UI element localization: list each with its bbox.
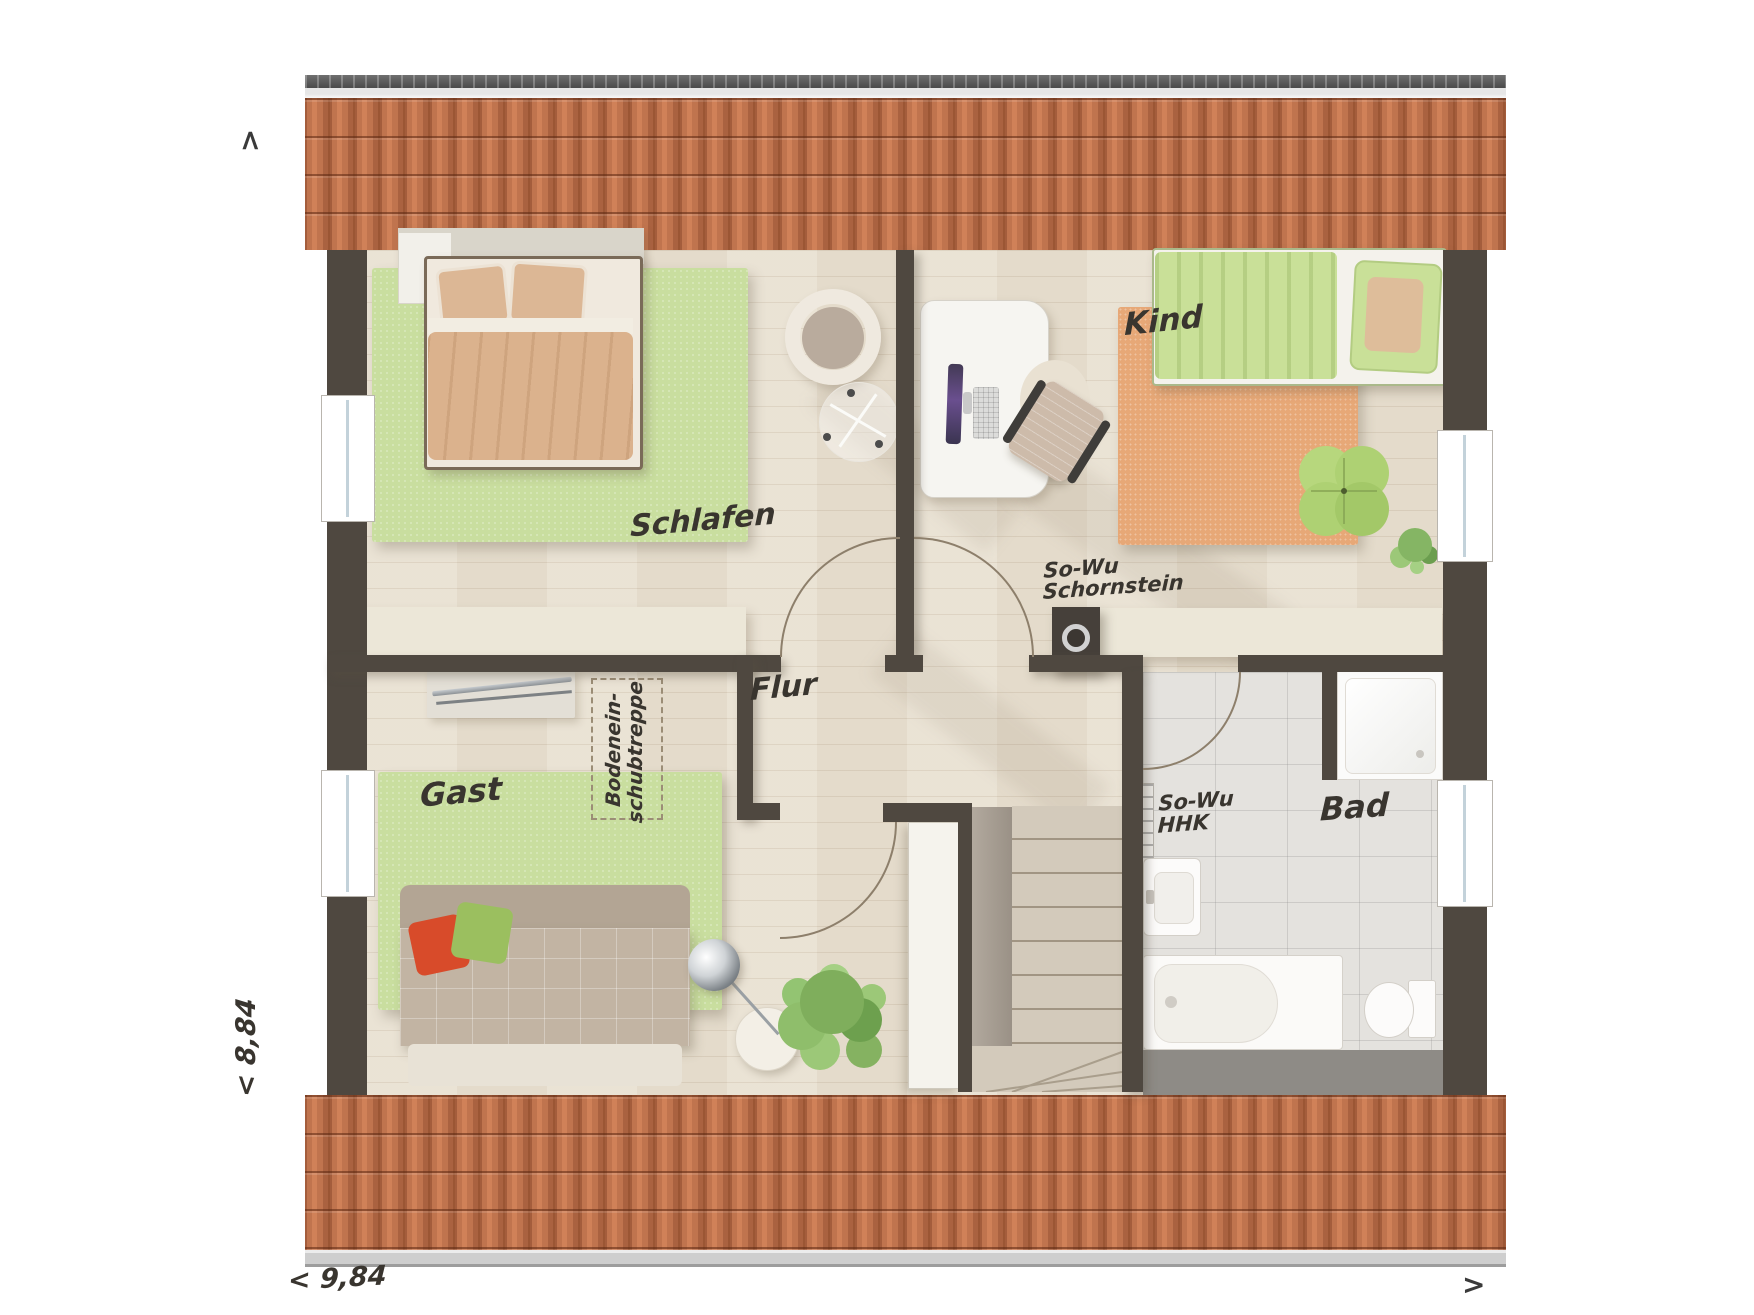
- floor-lamp-sphere: [688, 939, 740, 991]
- window-schlafen: [321, 395, 375, 522]
- roof-gutter: [305, 1250, 1506, 1270]
- toilet-bowl: [1364, 982, 1414, 1038]
- wall-door-stub-center: [885, 655, 923, 672]
- radiator-label: So-Wu HHK: [1157, 787, 1234, 836]
- wall-mid-left: [327, 655, 781, 672]
- chimney-ring: [1062, 624, 1090, 652]
- east-arrow-icon: >: [1462, 1268, 1485, 1301]
- bathtub-faucet: [1165, 996, 1177, 1008]
- loft-ladder-label-line2: schubtreppe: [624, 671, 646, 833]
- side-table-foot-dot-3: [875, 440, 883, 448]
- kind-plant: [1398, 528, 1432, 562]
- gast-side-table: [735, 1007, 799, 1071]
- kind-bed-pillow-inner: [1364, 277, 1424, 354]
- wall-bad-west: [1122, 672, 1143, 1092]
- knee-shelf-right: [1100, 608, 1442, 657]
- wall-gast-east-foot: [737, 803, 780, 820]
- keyboard: [973, 387, 999, 439]
- shower-basin: [1345, 678, 1436, 774]
- fern-plant: [800, 970, 864, 1034]
- stair-winders: [972, 1046, 1122, 1092]
- bed-duvet: [428, 332, 633, 460]
- roof-top: [305, 75, 1506, 250]
- side-table-foot-dot-2: [823, 433, 831, 441]
- wall-mid-right-a: [1029, 655, 1143, 672]
- dimension-depth: < 8,84: [231, 991, 271, 1105]
- sofa-cushion-green: [450, 901, 514, 965]
- side-table-foot-dot-1: [847, 389, 855, 397]
- window-schlafen-glazing: [346, 400, 349, 517]
- wall-mid-right-b: [1238, 655, 1443, 672]
- room-label-flur: Flur: [750, 667, 817, 708]
- papasan-cushion: [802, 307, 864, 369]
- roof-ridge: [305, 75, 1506, 88]
- wall-exterior-left: [327, 250, 367, 1095]
- wall-exterior-right: [1443, 250, 1487, 1095]
- chimney-label: So-Wu Schornstein: [1042, 551, 1184, 603]
- monitor: [946, 364, 964, 444]
- bath-sink-basin: [1154, 872, 1194, 924]
- stair-handrail: [972, 807, 1012, 1057]
- roof-ridge-flashing: [305, 88, 1506, 98]
- roof-tiles-bottom: [305, 1095, 1506, 1250]
- window-gast-glazing: [346, 775, 349, 892]
- monitor-stand: [963, 392, 972, 414]
- sofa-base: [408, 1044, 682, 1086]
- wall-shower-west: [1322, 670, 1337, 780]
- wall-stair-west: [958, 803, 972, 1092]
- floor-plan-canvas: Schlafen Kind Gast Flur Bad So-Wu Schorn…: [0, 0, 1754, 1315]
- bath-sink-faucet: [1146, 890, 1154, 904]
- window-kind-glazing: [1463, 435, 1466, 557]
- flur-wardrobe: [908, 822, 960, 1089]
- loft-ladder-label: Bodenein- schubtreppe: [602, 668, 652, 833]
- bath-south-band: [1143, 1050, 1443, 1095]
- window-kind: [1437, 430, 1493, 562]
- room-label-gast: Gast: [420, 769, 503, 814]
- dimension-width: < 9,84: [287, 1260, 387, 1296]
- loft-ladder-label-line1: Bodenein-: [602, 668, 624, 830]
- flower-pouf: [1293, 440, 1395, 542]
- shower-drain: [1416, 750, 1424, 758]
- window-gast: [321, 770, 375, 897]
- room-label-bad: Bad: [1319, 786, 1389, 829]
- roof-bottom: [305, 1095, 1506, 1270]
- north-arrow-icon: >: [233, 129, 266, 152]
- window-bad: [1437, 780, 1493, 907]
- window-bad-glazing: [1463, 785, 1466, 902]
- stair-treads: [1012, 806, 1122, 1046]
- knee-shelf-left: [337, 607, 746, 655]
